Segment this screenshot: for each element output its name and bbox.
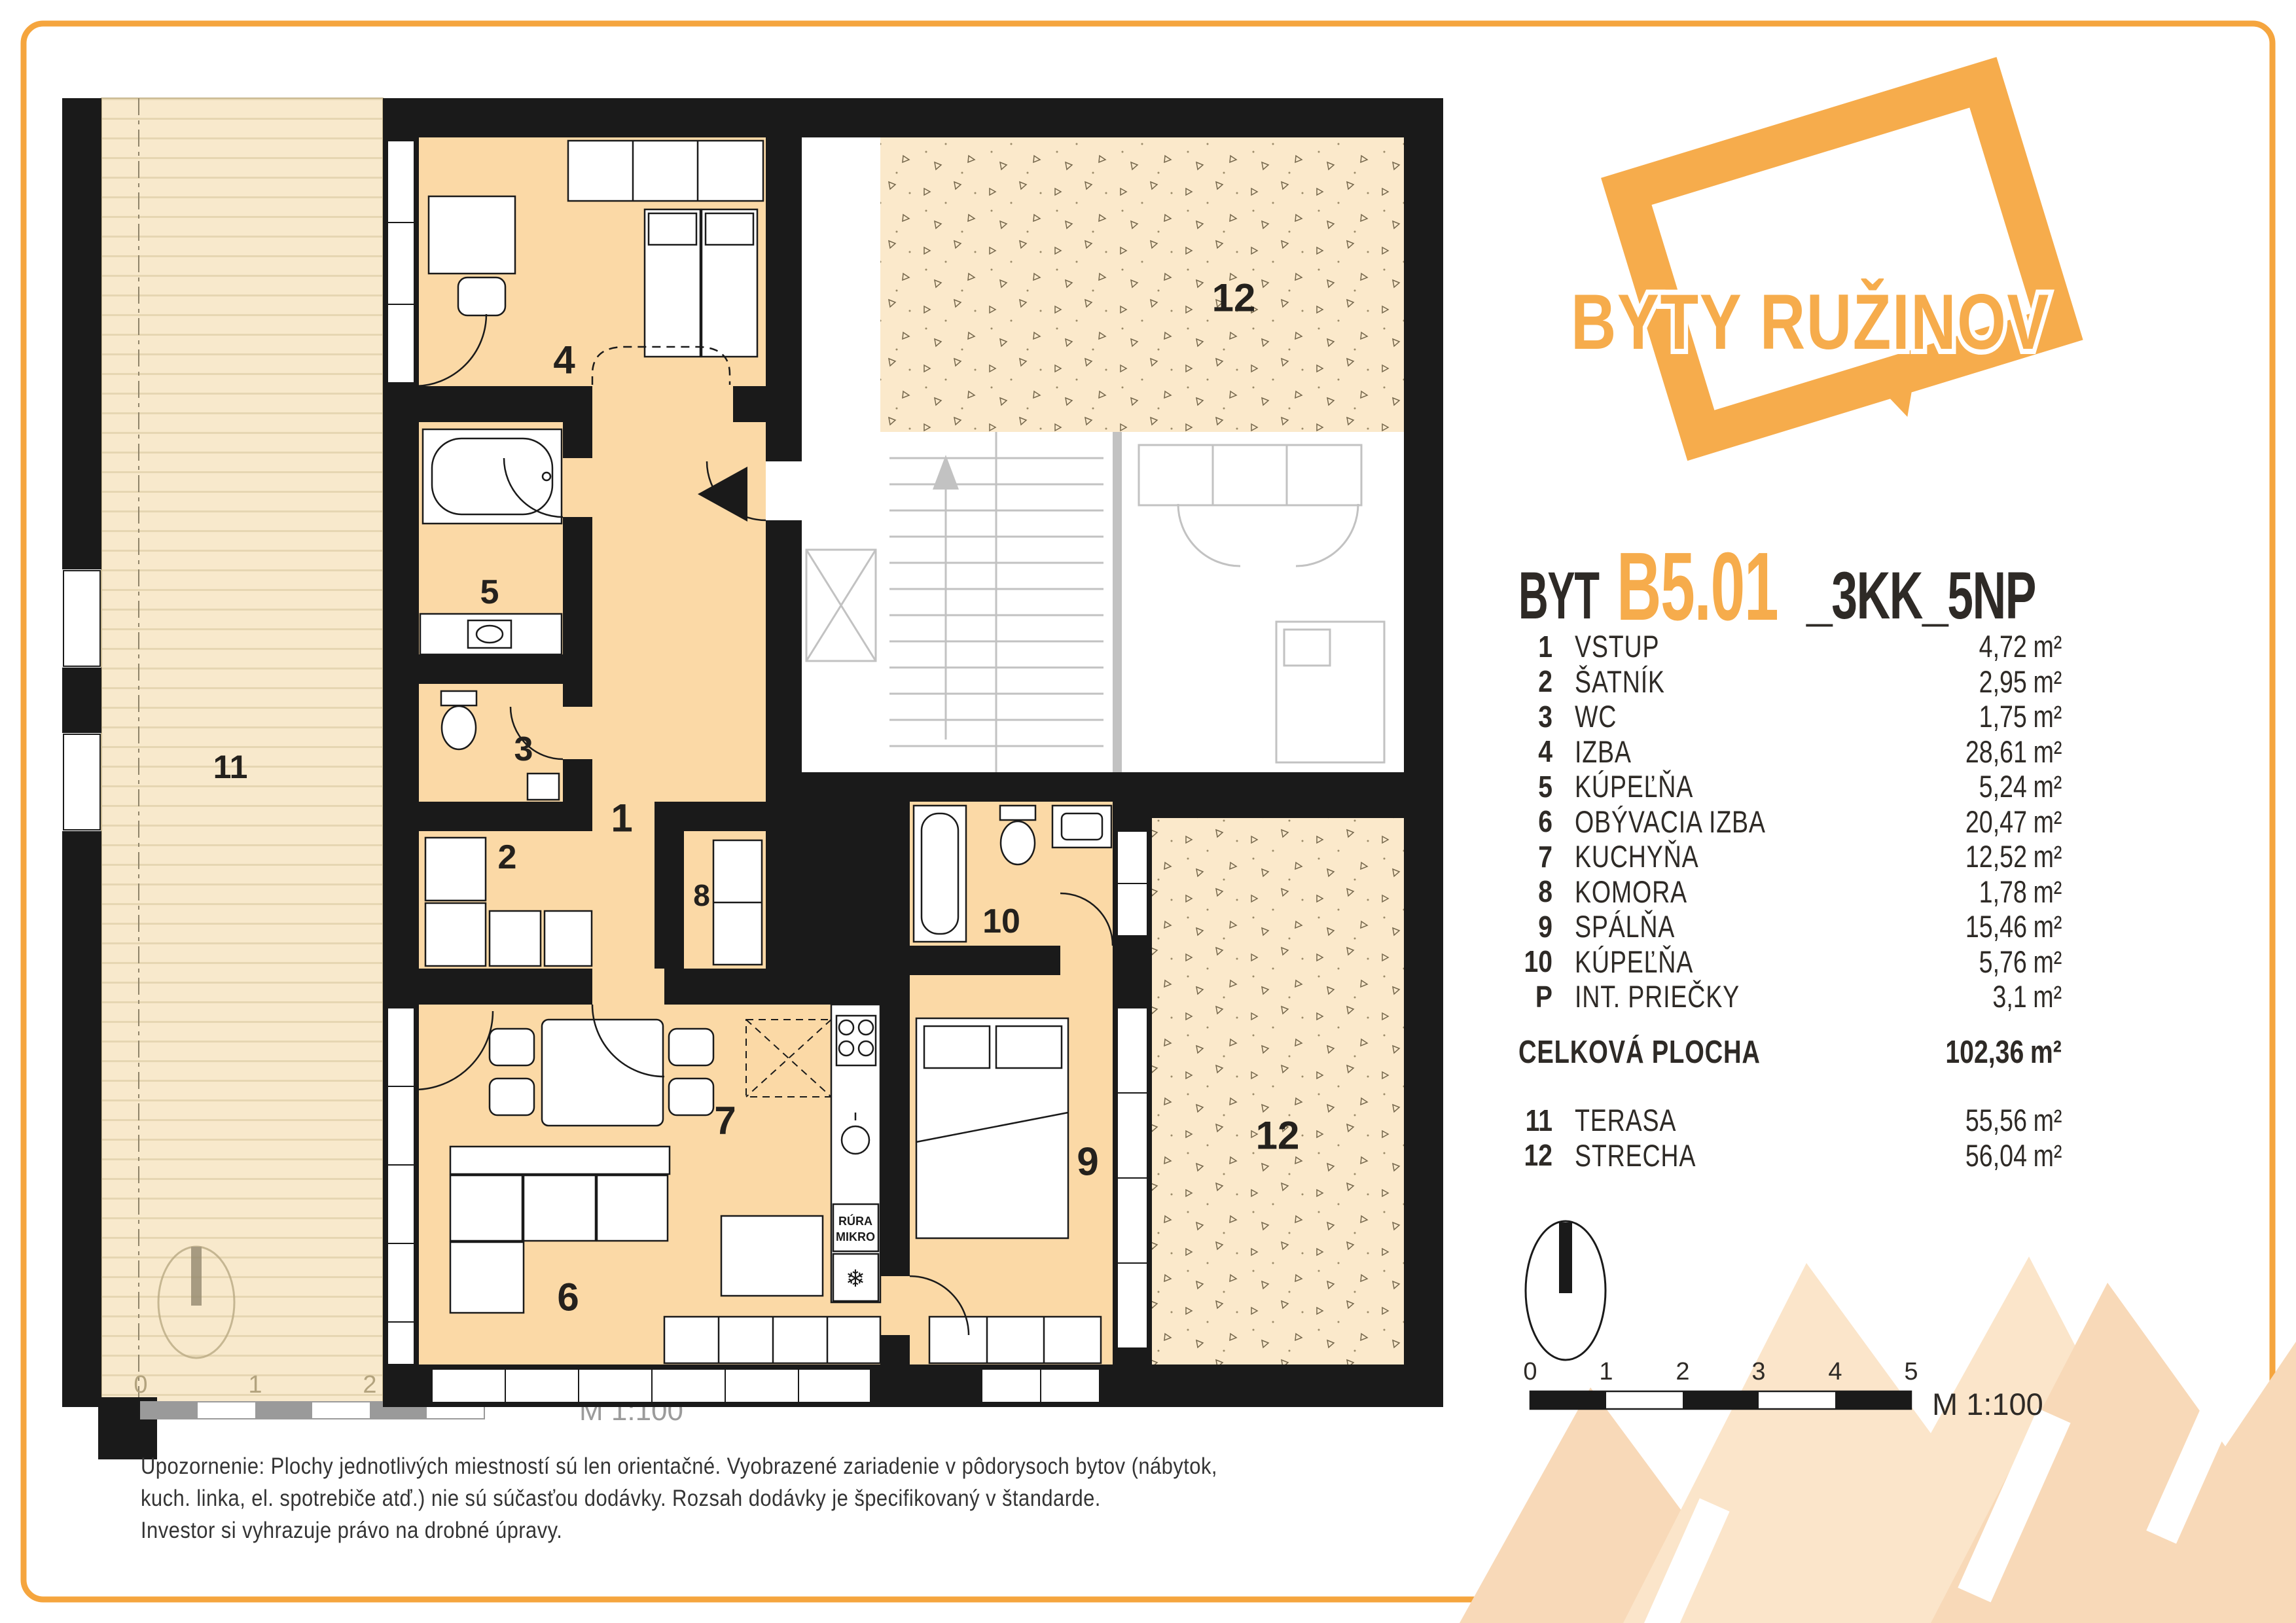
label-room-10: 10 [982, 902, 1020, 940]
scale-tick: 2 [1676, 1358, 1689, 1385]
room-area: 3,1m² [1992, 978, 2062, 1014]
area-unit: m² [2033, 839, 2062, 874]
area-value: 3,1 [1992, 979, 2026, 1014]
outdoor-legend: 11 TERASA 55,56m² 12 STRECHA 56,04m² [1518, 1103, 2062, 1173]
room-name: OBÝVACIA IZBA [1575, 804, 1868, 840]
area-unit: m² [2033, 1138, 2062, 1173]
room-number: P [1524, 979, 1552, 1014]
room-number: 9 [1524, 909, 1552, 944]
room-name: ŠATNÍK [1575, 664, 1882, 700]
room-number: 5 [1524, 769, 1552, 804]
scale-tick: 3 [1751, 1358, 1765, 1385]
label-room-7: 7 [714, 1099, 736, 1143]
room-area: 12,52m² [1965, 838, 2062, 874]
label-room-8: 8 [693, 878, 710, 912]
label-room-2: 2 [498, 838, 517, 876]
area-unit: m² [2033, 1103, 2062, 1137]
north-indicator [1526, 1221, 1605, 1360]
apartment-title: BYT B5.01 _3KK_5NP [1518, 535, 2081, 640]
room-area: 4,72m² [1979, 628, 2062, 664]
disclaimer: Upozornenie: Plochy jednotlivých miestno… [141, 1450, 1357, 1546]
room-number: 11 [1524, 1103, 1552, 1138]
room-area: 5,76m² [1979, 944, 2062, 980]
label-room-9: 9 [1077, 1140, 1098, 1184]
floorplan-sheet: 0 1 2 3 M 1:100 [0, 0, 2296, 1623]
legend-row: 2 ŠATNÍK 2,95m² [1518, 664, 2062, 700]
area-unit: m² [2033, 804, 2062, 839]
room-area: 55,56m² [1965, 1102, 2062, 1138]
area-unit: m² [2033, 909, 2062, 944]
area-value: 5,24 [1979, 769, 2026, 804]
legend-row: 7 KUCHYŇA 12,52m² [1518, 839, 2062, 874]
area-value: 2,95 [1979, 664, 2026, 699]
room-name: STRECHA [1575, 1137, 1868, 1173]
room-name: TERASA [1575, 1102, 1868, 1138]
area-value: 1,78 [1979, 874, 2026, 909]
room-name: KOMORA [1575, 874, 1882, 910]
room-number: 8 [1524, 874, 1552, 909]
area-value: 28,61 [1965, 734, 2026, 769]
label-roof-12-top: 12 [1212, 276, 1256, 320]
room-name: VSTUP [1575, 628, 1882, 664]
label-room-5: 5 [480, 573, 499, 611]
legend-row: 8 KOMORA 1,78m² [1518, 874, 2062, 910]
legend-row: 10 KÚPEĽŇA 5,76m² [1518, 944, 2062, 980]
legend-row: 9 SPÁLŇA 15,46m² [1518, 909, 2062, 944]
total-area: 102,36m² [1946, 1034, 2062, 1071]
room-number: 2 [1524, 664, 1552, 699]
scale-tick: 4 [1828, 1358, 1842, 1385]
room-name: KÚPEĽŇA [1575, 944, 1882, 980]
room-area: 28,61m² [1965, 734, 2062, 770]
area-value: 56,04 [1965, 1138, 2026, 1173]
logo-mark-icon [1626, 82, 2058, 436]
oven-label: RÚRA [838, 1214, 872, 1228]
disclaimer-line: kuch. linka, el. spotrebiče atď.) nie sú… [141, 1482, 1217, 1514]
scale-tick: 1 [1599, 1358, 1613, 1385]
floor-plan: 0 1 2 3 M 1:100 [62, 98, 1443, 1459]
legend-row: 12 STRECHA 56,04m² [1518, 1138, 2062, 1173]
legend-row: 4 IZBA 28,61m² [1518, 734, 2062, 770]
room-number: 7 [1524, 839, 1552, 874]
area-value: 20,47 [1965, 804, 2026, 839]
total-label: CELKOVÁ PLOCHA [1518, 1034, 1761, 1071]
room-name: INT. PRIEČKY [1575, 978, 1895, 1014]
area-value: 1,75 [1979, 699, 2026, 734]
area-value: 4,72 [1979, 629, 2026, 664]
scale-tick: 5 [1904, 1358, 1918, 1385]
faded-scale-tick: 2 [363, 1371, 376, 1399]
room-name: SPÁLŇA [1575, 908, 1868, 944]
label-room-4: 4 [553, 338, 575, 382]
disclaimer-line: Investor si vyhrazuje právo na drobné úp… [141, 1514, 1217, 1546]
area-unit: m² [2030, 1035, 2062, 1070]
area-value: 55,56 [1965, 1103, 2026, 1137]
area-unit: m² [2033, 769, 2062, 804]
label-room-1: 1 [611, 796, 632, 840]
label-terrace-11: 11 [213, 749, 248, 785]
title-unit-code: B5.01 [1617, 539, 1778, 635]
scale-tick: 0 [1523, 1358, 1537, 1385]
area-unit: m² [2033, 944, 2062, 979]
room-number: 1 [1524, 629, 1552, 664]
room-area: 20,47m² [1965, 804, 2062, 840]
area-unit: m² [2033, 979, 2062, 1014]
room-area: 1,78m² [1979, 874, 2062, 910]
title-suffix: _3KK_5NP [1806, 562, 2036, 629]
area-value: 102,36 [1946, 1035, 2024, 1070]
room-number: 3 [1524, 699, 1552, 734]
room-legend: 1 VSTUP 4,72m² 2 ŠATNÍK 2,95m² 3 WC 1,75… [1518, 629, 2062, 1014]
room-name: IZBA [1575, 734, 1868, 770]
scale-label: M 1:100 [1932, 1387, 2043, 1421]
room-number: 12 [1524, 1137, 1552, 1173]
label-room-3: 3 [514, 730, 533, 768]
total-area-row: CELKOVÁ PLOCHA 102,36m² [1518, 1033, 2062, 1072]
room-area: 1,75m² [1979, 698, 2062, 734]
legend-row: 11 TERASA 55,56m² [1518, 1103, 2062, 1138]
label-room-6: 6 [557, 1275, 579, 1319]
room-area: 5,24m² [1979, 768, 2062, 804]
title-prefix: BYT [1518, 562, 1599, 629]
room-area: 2,95m² [1979, 664, 2062, 700]
roof-top [880, 137, 1404, 432]
roof-right [1152, 818, 1404, 1364]
room-area: 15,46m² [1965, 908, 2062, 944]
faded-scale-tick: 0 [134, 1371, 147, 1399]
room-name: WC [1575, 698, 1882, 734]
area-unit: m² [2033, 664, 2062, 699]
room-name: KUCHYŇA [1575, 838, 1868, 874]
logo-text: BYTY RUŽINOV [1571, 278, 2050, 366]
room-number: 10 [1524, 944, 1552, 979]
fridge-icon: ❄ [846, 1265, 865, 1292]
area-unit: m² [2033, 734, 2062, 769]
area-value: 12,52 [1965, 839, 2026, 874]
area-unit: m² [2033, 629, 2062, 664]
area-unit: m² [2033, 874, 2062, 909]
label-roof-12-right: 12 [1256, 1114, 1300, 1158]
room-name: KÚPEĽŇA [1575, 768, 1882, 804]
area-value: 5,76 [1979, 944, 2026, 979]
room-area: 56,04m² [1965, 1137, 2062, 1173]
room-number: 6 [1524, 804, 1552, 839]
legend-row: 1 VSTUP 4,72m² [1518, 629, 2062, 664]
area-unit: m² [2033, 699, 2062, 734]
room-number: 4 [1524, 734, 1552, 769]
area-value: 15,46 [1965, 909, 2026, 944]
legend-row: 3 WC 1,75m² [1518, 699, 2062, 734]
micro-label: MIKRO [836, 1230, 875, 1243]
legend-row: 6 OBÝVACIA IZBA 20,47m² [1518, 804, 2062, 840]
legend-row: P INT. PRIEČKY 3,1m² [1518, 979, 2062, 1014]
legend-row: 5 KÚPEĽŇA 5,24m² [1518, 769, 2062, 804]
disclaimer-line: Upozornenie: Plochy jednotlivých miestno… [141, 1450, 1217, 1482]
logo: BYTY RUŽINOV [1571, 82, 2070, 476]
faded-scale-tick: 1 [248, 1371, 262, 1399]
